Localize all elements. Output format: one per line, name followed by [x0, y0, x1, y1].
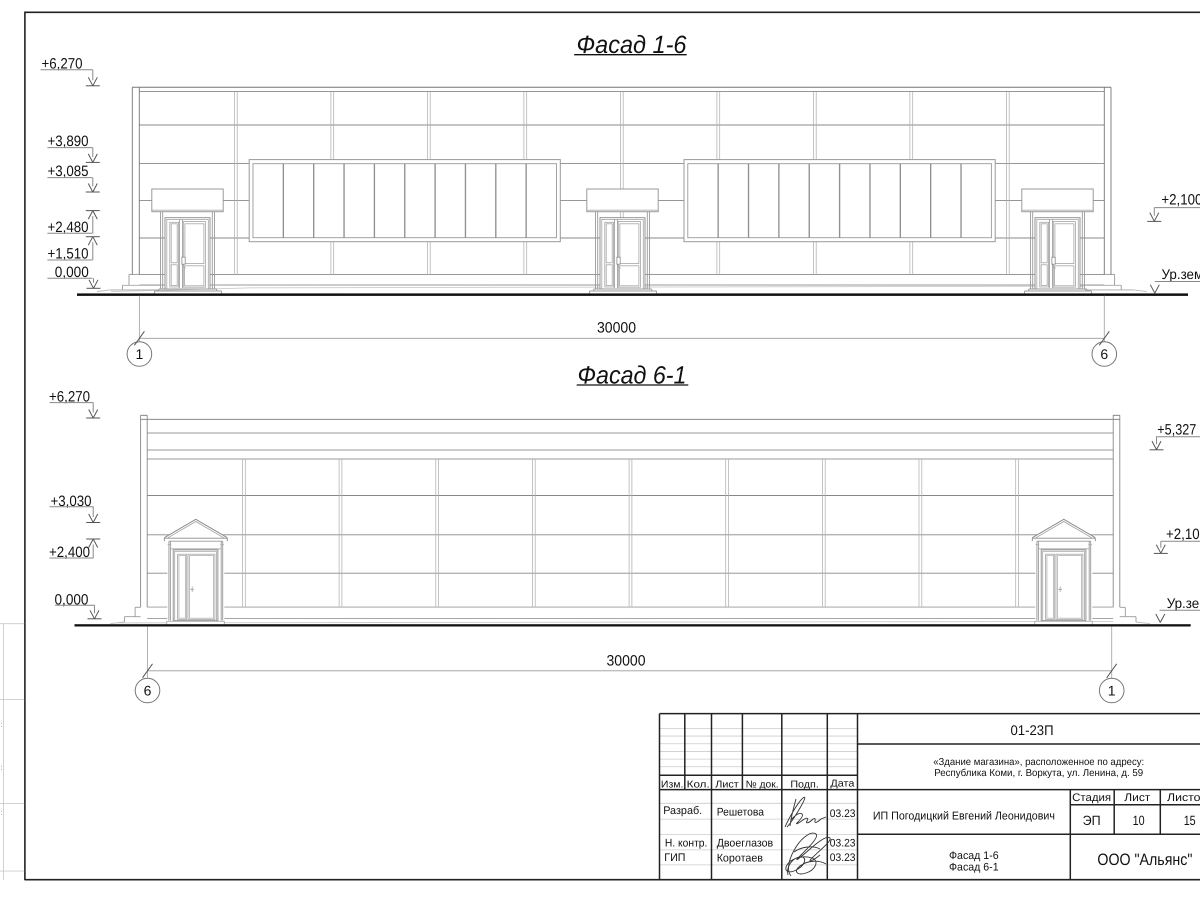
svg-text:«Здание магазина», расположенн: «Здание магазина», расположенное по адре… [933, 757, 1144, 768]
svg-text:1: 1 [1108, 683, 1116, 699]
svg-text:1: 1 [136, 346, 144, 362]
svg-text:Кол.: Кол. [687, 779, 710, 790]
svg-text:Двоеглазов: Двоеглазов [717, 838, 774, 850]
svg-text:ГИП: ГИП [664, 852, 685, 864]
svg-text:Фасад 1-6: Фасад 1-6 [949, 850, 999, 862]
svg-text:Республика Коми, г. Воркута, у: Республика Коми, г. Воркута, ул. Ленина,… [934, 768, 1143, 779]
svg-text:03.23: 03.23 [830, 852, 856, 864]
svg-text:Коротаев: Коротаев [717, 853, 763, 865]
svg-text:30000: 30000 [607, 653, 646, 670]
svg-text:+2,100: +2,100 [1166, 526, 1200, 543]
svg-text:03.23: 03.23 [830, 837, 856, 849]
svg-text:+5,327: +5,327 [1157, 422, 1196, 439]
svg-text:Изм.: Изм. [661, 779, 684, 790]
svg-text:Ур.земли: Ур.земли [1167, 595, 1200, 611]
svg-text:+2,100: +2,100 [1161, 192, 1200, 209]
svg-text:Подп.: Подп. [790, 779, 819, 790]
svg-text:Фасад 6-1: Фасад 6-1 [949, 861, 999, 873]
svg-text:Листов: Листов [1167, 792, 1200, 804]
svg-text:6: 6 [1100, 346, 1108, 362]
svg-text::: : [0, 808, 2, 817]
svg-text:Ур.земли: Ур.земли [1162, 266, 1200, 282]
svg-text:15: 15 [1184, 813, 1196, 828]
svg-text::: : [0, 720, 2, 729]
svg-text:10: 10 [1133, 813, 1145, 828]
svg-text::: : [0, 763, 2, 772]
svg-text:ИП Погодицкий Евгений Леонидов: ИП Погодицкий Евгений Леонидович [873, 810, 1055, 822]
svg-text:Лист: Лист [715, 779, 739, 790]
svg-text:Решетова: Решетова [717, 807, 765, 819]
svg-text:03.23: 03.23 [830, 808, 856, 820]
svg-text:ООО "Альянс": ООО "Альянс" [1097, 851, 1192, 869]
svg-text:Дата: Дата [830, 779, 854, 790]
svg-text:Лист: Лист [1124, 792, 1150, 804]
svg-text:01-23П: 01-23П [1011, 722, 1054, 738]
svg-text:ЭП: ЭП [1083, 813, 1101, 828]
svg-text:Н. контр.: Н. контр. [665, 838, 708, 850]
svg-text:№ док.: № док. [746, 779, 779, 790]
svg-text:Разраб.: Разраб. [663, 805, 702, 817]
svg-text:30000: 30000 [597, 320, 636, 337]
svg-text:Стадия: Стадия [1072, 792, 1111, 804]
svg-text:6: 6 [144, 683, 152, 699]
